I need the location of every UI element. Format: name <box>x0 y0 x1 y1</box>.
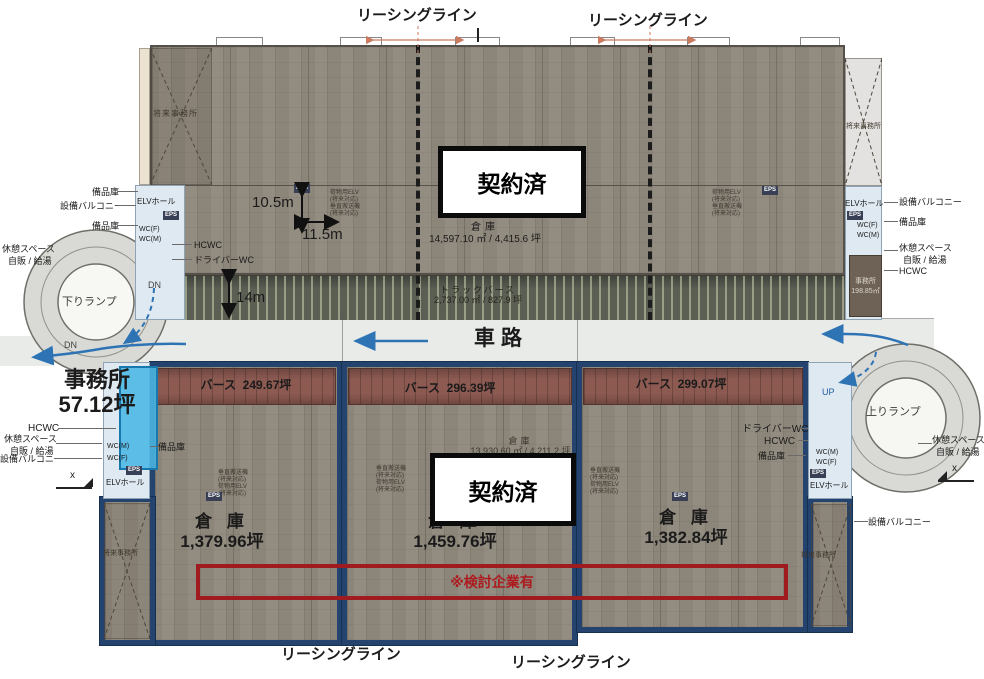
bihinko-label: 備品庫 <box>92 187 119 197</box>
upper-warehouse-area: 14,597.10 ㎡ / 4,415.6 坪 <box>420 234 550 246</box>
eps-badge: EPS <box>762 186 778 195</box>
eps-badge: EPS <box>810 469 826 478</box>
leasing-boundary-line-right <box>648 45 652 320</box>
up-label: UP <box>822 387 835 397</box>
leader-line <box>788 455 806 456</box>
leasing-line-label-bottom-left: リーシングライン <box>281 646 401 663</box>
floor-plan-canvas: 将来事務所 将来事務所 事務所 198.85㎡ ELVホール WC(F) WC(… <box>0 0 984 679</box>
future-office-label-lower-right: 将来事務所 <box>801 552 836 560</box>
axis-x-label: x <box>952 463 957 475</box>
leader-line <box>118 191 138 192</box>
leader-line <box>118 205 136 206</box>
leader-line <box>798 428 808 429</box>
truck-berth-caption: トラックバース 2,737.00 ㎡ / 827.9 坪 <box>408 285 548 306</box>
dimension-11-5m: 11.5m <box>302 226 343 243</box>
berth-label-1: バース 249.67坪 <box>186 379 306 393</box>
upper-warehouse-name: 倉庫 <box>420 222 550 234</box>
road-joint-line <box>577 318 578 363</box>
axis-x-label: x <box>70 470 75 482</box>
elv-note: 荷物用ELV (将来対応) 垂直搬送機 (将来対応) <box>712 190 742 218</box>
eps-badge: EPS <box>126 466 142 475</box>
leader-line <box>854 521 868 522</box>
dn-label: DN <box>64 340 77 350</box>
note-text: ※検討企業有 <box>450 572 534 592</box>
leased-office-caption: 事務所 57.12坪 <box>44 367 150 418</box>
vending-label: 自販 / 給湯 <box>936 447 980 457</box>
vending-label: 自販 / 給湯 <box>903 255 947 265</box>
future-office-label-lower-left: 将来事務所 <box>103 550 138 558</box>
leader-line <box>118 225 138 226</box>
up-ramp-label: 上りランプ <box>866 406 921 419</box>
bihinko-label: 備品庫 <box>92 221 119 231</box>
eps-badge: EPS <box>163 211 179 220</box>
wc-f-label: WC(F) <box>139 226 160 234</box>
upper-warehouse-caption: 倉庫 14,597.10 ㎡ / 4,415.6 坪 <box>420 222 550 245</box>
leader-line <box>150 446 158 447</box>
axis-marker-line-right <box>938 480 974 482</box>
balcony-label: 設備バルコニー <box>868 517 931 527</box>
elv-hall-label: ELVホール <box>810 481 849 490</box>
rest-space-label: 休憩スペース <box>2 244 55 254</box>
wc-f-label: WC(F) <box>816 459 837 467</box>
future-office-label-upper-left: 将来事務所 <box>153 109 198 118</box>
elv-hall-label: ELVホール <box>137 197 176 206</box>
elv-note: 垂直搬送機 (将来対応) 荷物用ELV (将来対応) <box>376 466 406 494</box>
dimension-10-5m: 10.5m <box>252 194 294 211</box>
rest-space-label: 休憩スペース <box>932 435 984 445</box>
leader-line <box>884 202 898 203</box>
wc-f-label: WC(F) <box>857 222 878 230</box>
berth-label-3: バース 299.07坪 <box>621 378 741 392</box>
leasing-line-label-top-right: リーシングライン <box>588 12 708 29</box>
bihinko-label: 備品庫 <box>899 217 926 227</box>
vending-label: 自販 / 給湯 <box>8 256 52 266</box>
wc-m-label: WC(M) <box>107 443 129 451</box>
leader-line <box>54 458 102 459</box>
leasing-line-label-bottom-right: リーシングライン <box>511 654 631 671</box>
axis-marker-triangle-right <box>938 471 947 480</box>
balcony-label: 設備バルコニー <box>899 197 962 207</box>
eps-badge: EPS <box>206 492 222 501</box>
elv-note: 垂直搬送機 (将来対応) 荷物用ELV (将来対応) <box>590 468 620 496</box>
leader-line <box>918 443 932 444</box>
leader-line <box>172 244 192 245</box>
leasing-boundary-line-left <box>416 45 420 320</box>
down-ramp-label: 下りランプ <box>62 296 117 309</box>
driveway-label: 車路 <box>474 327 528 351</box>
wc-m-label: WC(M) <box>139 236 161 244</box>
future-office-box-lower-left <box>104 503 150 639</box>
service-core-lower-right <box>808 362 852 499</box>
road-joint-line <box>342 318 343 363</box>
driver-wc-label: ドライバーWC <box>742 424 808 436</box>
rest-space-label: 休憩スペース <box>4 434 57 444</box>
note-box: ※検討企業有 <box>196 564 788 600</box>
bihinko-label: 備品庫 <box>758 451 785 461</box>
office-area: 198.85㎡ <box>851 286 879 296</box>
eps-badge: EPS <box>672 492 688 501</box>
warehouse-caption-3: 倉 庫 1,382.84坪 <box>634 508 738 547</box>
elv-hall-label: ELVホール <box>106 478 145 487</box>
eps-badge: EPS <box>294 184 310 193</box>
driver-wc-label: ドライバーWC <box>194 255 254 265</box>
leader-line <box>884 250 898 251</box>
wc-m-label: WC(M) <box>857 232 879 240</box>
hcwc-label: HCWC <box>899 266 927 276</box>
wc-f-label: WC(F) <box>107 455 128 463</box>
truck-berth-name: トラックバース <box>408 285 548 295</box>
hcwc-label: HCWC <box>28 423 59 435</box>
office-box-upper-right: 事務所 198.85㎡ <box>849 255 882 317</box>
bihinko-label: 備品庫 <box>158 442 185 452</box>
leader-line <box>172 259 192 260</box>
leader-line <box>798 440 808 441</box>
wc-m-label: WC(M) <box>816 449 838 457</box>
warehouse-caption-1: 倉 庫 1,379.96坪 <box>170 512 274 551</box>
leader-line <box>58 428 116 429</box>
leader-line <box>884 221 898 222</box>
berth-label-2: バース 296.39坪 <box>390 382 510 396</box>
rest-space-label: 休憩スペース <box>899 243 952 253</box>
contracted-box-upper: 契約済 <box>438 146 586 218</box>
future-office-label-upper-right: 将来事務所 <box>846 122 882 131</box>
eps-badge: EPS <box>847 211 863 220</box>
leader-line <box>56 443 102 444</box>
dn-label: DN <box>148 280 161 290</box>
elv-hall-label: ELVホール <box>845 199 884 208</box>
balcony-label: 設備バルコニー <box>0 454 63 464</box>
axis-marker-line-left <box>56 487 92 489</box>
future-office-box-lower-right <box>811 504 851 626</box>
contracted-box-lower: 契約済 <box>430 453 576 526</box>
leasing-line-label-top-left: リーシングライン <box>357 7 477 24</box>
balcony-strip-left <box>139 48 150 185</box>
axis-marker-triangle-left <box>84 478 93 487</box>
dimension-14m: 14m <box>236 289 265 306</box>
hcwc-label: HCWC <box>764 436 795 448</box>
balcony-label: 設備バルコニー <box>60 201 123 211</box>
leader-line <box>884 270 898 271</box>
hcwc-label: HCWC <box>194 240 222 250</box>
elv-note: 荷物用ELV (将来対応) 垂直搬送機 (将来対応) <box>330 190 360 218</box>
elv-note: 垂直搬送機 (将来対応) 荷物用ELV (将来対応) <box>218 470 248 498</box>
truck-berth-area: 2,737.00 ㎡ / 827.9 坪 <box>408 295 548 305</box>
office-name: 事務所 <box>855 276 876 286</box>
